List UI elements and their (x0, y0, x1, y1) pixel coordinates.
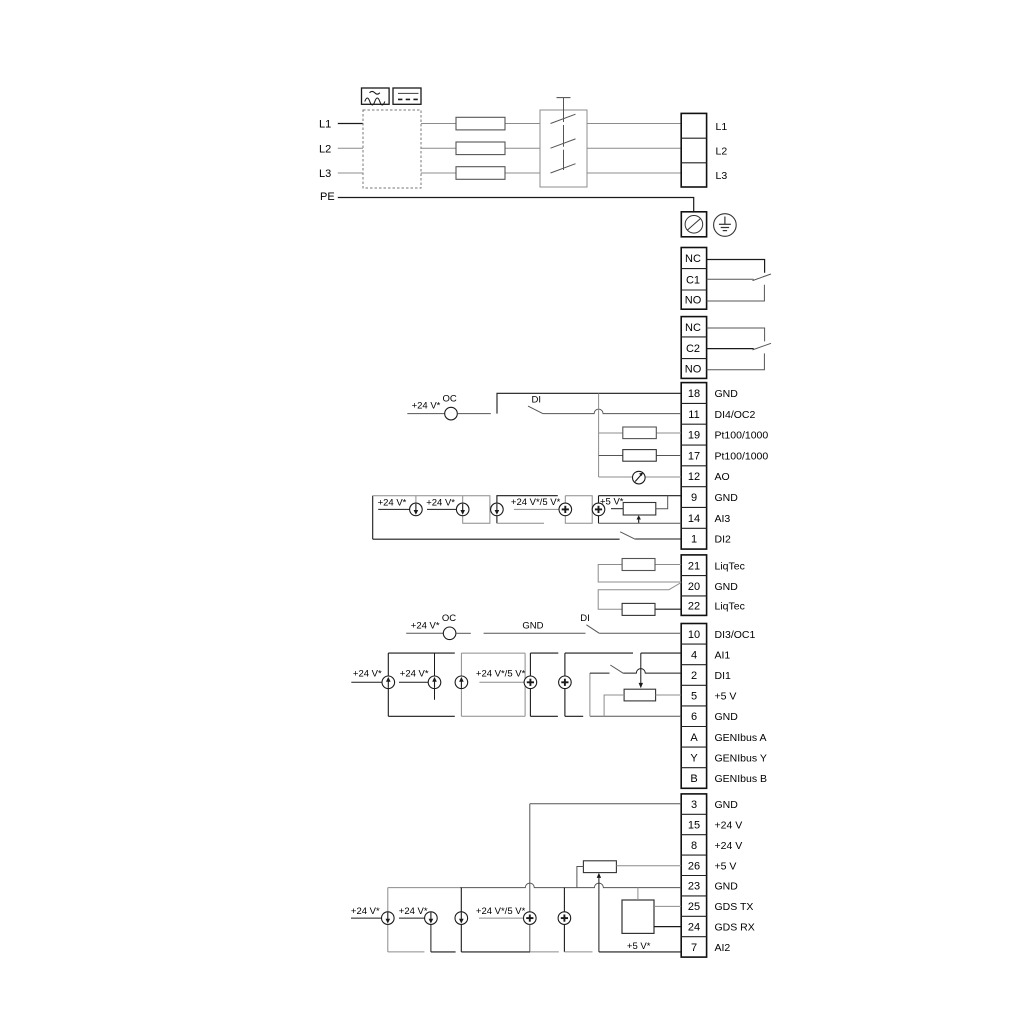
svg-text:15: 15 (688, 820, 700, 832)
svg-text:+5 V: +5 V (715, 860, 737, 872)
svg-text:AI2: AI2 (715, 942, 731, 954)
svg-text:4: 4 (691, 649, 697, 661)
svg-text:23: 23 (688, 881, 700, 893)
svg-text:11: 11 (688, 409, 699, 421)
svg-text:GDS RX: GDS RX (715, 922, 755, 934)
svg-text:Y: Y (690, 752, 698, 764)
svg-text:+24 V*: +24 V* (411, 621, 440, 632)
svg-text:24: 24 (688, 922, 700, 934)
svg-text:+24 V*/5 V*: +24 V*/5 V* (476, 669, 526, 680)
svg-text:GND: GND (715, 799, 739, 811)
svg-text:6: 6 (691, 711, 697, 723)
svg-text:2: 2 (691, 670, 697, 682)
svg-text:+24 V*/5 V*: +24 V*/5 V* (476, 906, 526, 917)
svg-text:+24 V*: +24 V* (378, 498, 407, 509)
svg-text:L2: L2 (319, 143, 331, 155)
svg-text:GENIbus B: GENIbus B (715, 773, 768, 785)
svg-text:7: 7 (691, 942, 697, 954)
svg-text:1: 1 (691, 534, 697, 546)
svg-text:+5 V: +5 V (715, 691, 737, 703)
svg-text:+24 V*: +24 V* (399, 906, 428, 917)
svg-text:GENIbus Y: GENIbus Y (715, 752, 767, 764)
svg-text:GND: GND (715, 581, 739, 593)
svg-text:DI1: DI1 (715, 670, 732, 682)
svg-text:AO: AO (715, 471, 730, 483)
svg-text:+24 V*: +24 V* (426, 498, 455, 509)
svg-text:GND: GND (522, 621, 543, 632)
svg-text:NO: NO (685, 364, 702, 376)
svg-text:PE: PE (320, 191, 335, 203)
svg-text:Pt100/1000: Pt100/1000 (715, 430, 769, 442)
svg-text:C2: C2 (686, 343, 700, 355)
svg-text:L2: L2 (716, 146, 728, 158)
svg-text:GND: GND (715, 492, 739, 504)
svg-text:DI3/OC1: DI3/OC1 (715, 629, 756, 641)
svg-text:DI2: DI2 (715, 534, 732, 546)
svg-text:20: 20 (688, 581, 700, 593)
svg-text:L1: L1 (716, 121, 728, 133)
svg-text:GND: GND (715, 388, 739, 400)
svg-text:DI4/OC2: DI4/OC2 (715, 409, 756, 421)
svg-text:18: 18 (688, 388, 700, 400)
svg-text:GENIbus A: GENIbus A (715, 732, 767, 744)
svg-text:B: B (690, 773, 697, 785)
svg-text:AI1: AI1 (715, 649, 731, 661)
svg-text:NC: NC (685, 253, 701, 265)
svg-text:GND: GND (715, 711, 739, 723)
svg-text:12: 12 (688, 471, 700, 483)
svg-text:17: 17 (688, 450, 700, 462)
svg-text:14: 14 (688, 513, 700, 525)
svg-text:Pt100/1000: Pt100/1000 (715, 450, 769, 462)
svg-text:DI: DI (532, 394, 542, 405)
svg-text:+24 V*: +24 V* (351, 906, 380, 917)
svg-text:+24 V*: +24 V* (353, 669, 382, 680)
svg-text:A: A (690, 732, 698, 744)
svg-text:AI3: AI3 (715, 513, 731, 525)
svg-text:+24 V: +24 V (715, 820, 743, 832)
svg-text:L3: L3 (716, 170, 728, 182)
svg-text:LiqTec: LiqTec (715, 560, 745, 572)
svg-text:10: 10 (688, 629, 700, 641)
svg-text:26: 26 (688, 860, 700, 872)
svg-text:19: 19 (688, 430, 700, 442)
svg-text:3: 3 (691, 799, 697, 811)
svg-text:+24 V: +24 V (715, 840, 743, 852)
svg-text:OC: OC (442, 613, 456, 624)
svg-text:NC: NC (685, 322, 701, 334)
svg-text:22: 22 (688, 601, 700, 613)
svg-text:+24 V*: +24 V* (412, 401, 441, 412)
svg-text:+5 V*: +5 V* (627, 941, 651, 952)
svg-text:GDS TX: GDS TX (715, 901, 754, 913)
svg-text:+5 V*: +5 V* (600, 497, 624, 508)
svg-text:C1: C1 (686, 274, 700, 286)
svg-text:25: 25 (688, 901, 700, 913)
svg-text:8: 8 (691, 840, 697, 852)
svg-text:NO: NO (685, 295, 702, 307)
svg-text:DI: DI (580, 613, 590, 624)
svg-text:L1: L1 (319, 119, 331, 131)
svg-text:5: 5 (691, 691, 697, 703)
svg-text:GND: GND (715, 881, 739, 893)
svg-text:LiqTec: LiqTec (715, 601, 745, 613)
svg-text:+24 V*/5 V*: +24 V*/5 V* (511, 497, 561, 508)
svg-text:L3: L3 (319, 168, 331, 180)
svg-text:+24 V*: +24 V* (400, 669, 429, 680)
svg-text:21: 21 (688, 560, 700, 572)
svg-text:9: 9 (691, 492, 697, 504)
svg-text:OC: OC (443, 394, 457, 405)
